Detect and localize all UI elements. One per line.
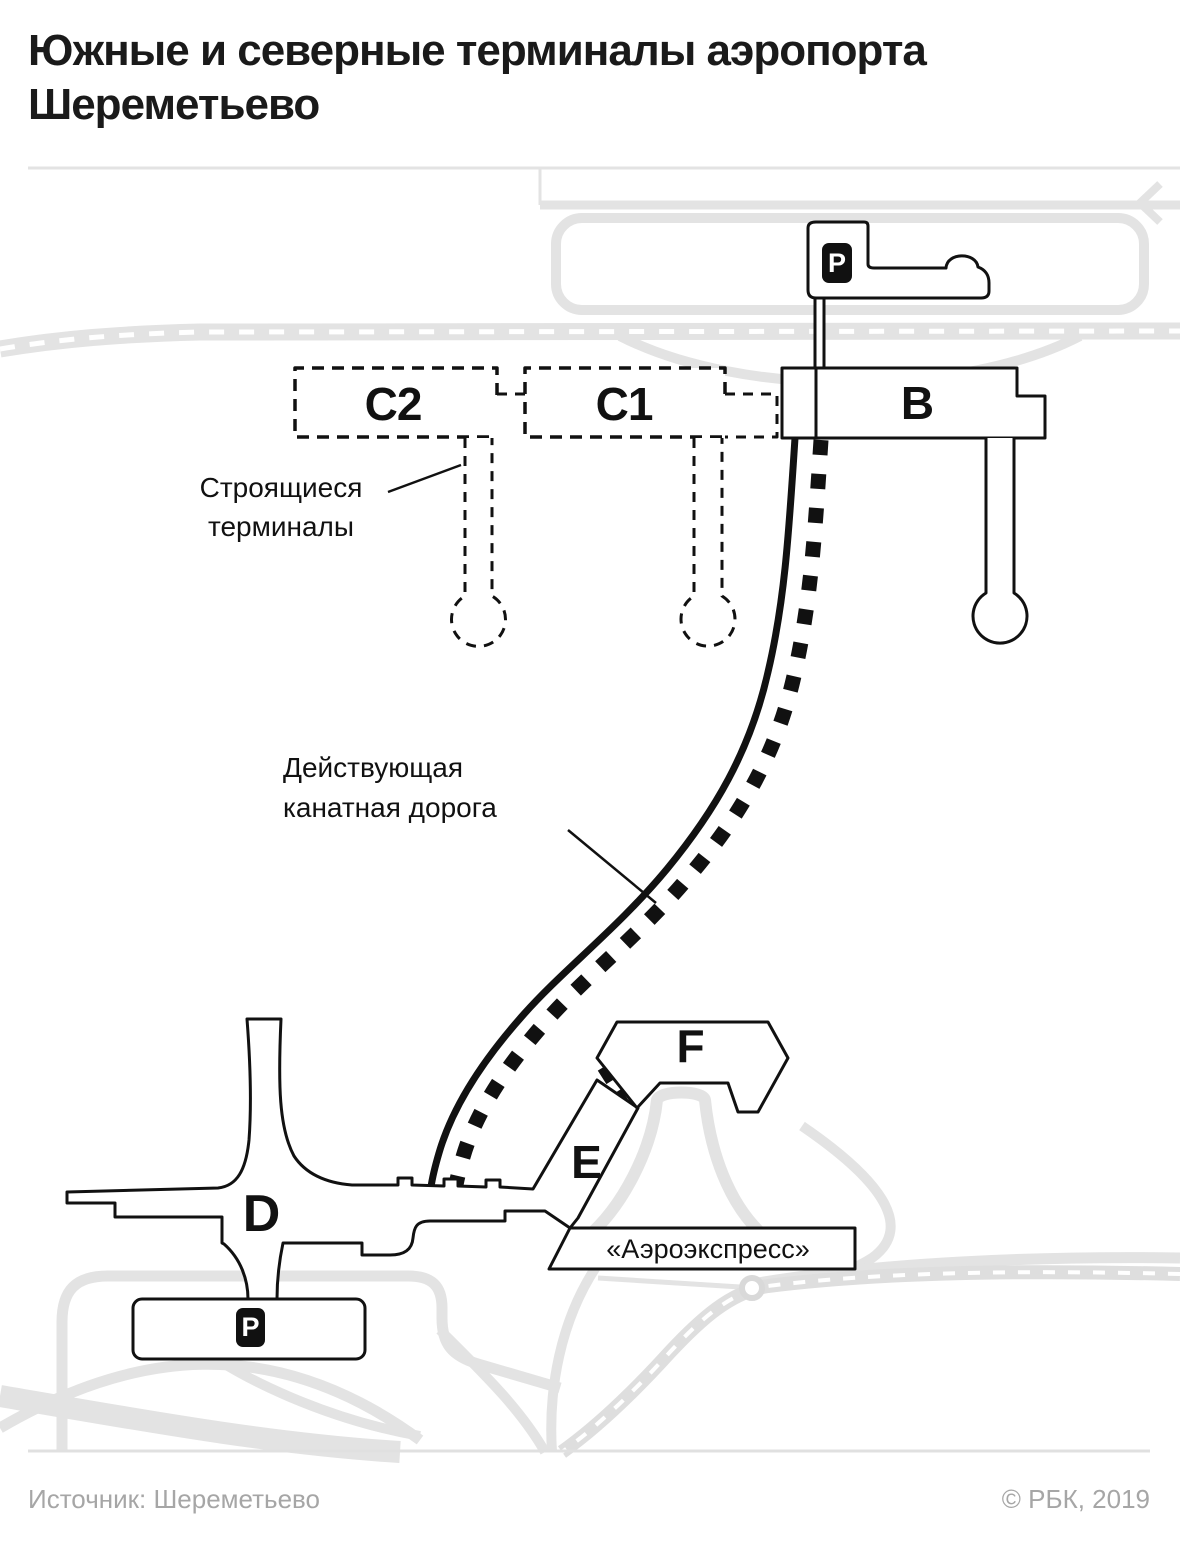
road-station-link [598, 1278, 740, 1287]
road-sw-curve3 [440, 1330, 545, 1452]
terminal-c2-pier [452, 438, 506, 646]
terminal-d-e-complex [67, 1019, 638, 1299]
under-construction-line1: Строящиеся [176, 468, 386, 507]
under-construction-line2: терминалы [176, 507, 386, 546]
connector-c1-b [725, 394, 777, 437]
road-main-horizontal [0, 331, 1180, 349]
pointer-line-cable-car [568, 830, 656, 903]
terminal-d-label: D [243, 1184, 280, 1244]
railway-station-marker [742, 1278, 762, 1298]
terminal-c1-label: C1 [596, 377, 653, 431]
infographic-page: Южные и северные терминалы аэропорта Шер… [0, 0, 1180, 1560]
terminal-b-pier [973, 438, 1027, 643]
airport-map [0, 0, 1180, 1560]
terminal-c2-label: C2 [365, 377, 422, 431]
footer: Источник: Шереметьево © РБК, 2019 [28, 1484, 1150, 1515]
under-construction-label: Строящиеся терминалы [176, 468, 386, 546]
footer-source: Источник: Шереметьево [28, 1484, 320, 1515]
footer-copyright: © РБК, 2019 [1002, 1484, 1150, 1515]
terminal-e-label: E [571, 1135, 601, 1189]
parking-b-icon: P [822, 243, 852, 283]
pointer-line-construction [388, 465, 461, 492]
cable-car-label: Действующая канатная дорога [283, 748, 497, 828]
aeroexpress-label: «Аэроэкспресс» [562, 1229, 854, 1269]
terminal-f-label: F [676, 1019, 703, 1073]
terminal-b-label: B [901, 376, 933, 430]
cable-car-line1: Действующая [283, 748, 497, 788]
parking-d-icon: P [236, 1308, 265, 1347]
terminal-c1-pier [681, 438, 735, 646]
railway-line [562, 1272, 1180, 1452]
terminal-shapes [67, 222, 1045, 1359]
cable-car-line2: канатная дорога [283, 788, 497, 828]
